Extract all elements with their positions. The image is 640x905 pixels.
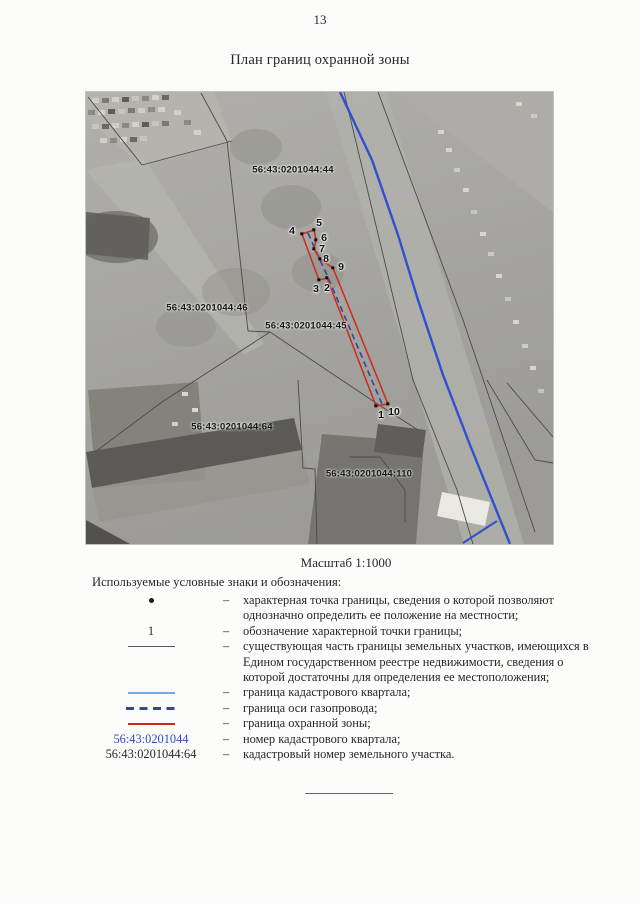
legend-description: граница кадастрового квартала; bbox=[243, 685, 603, 700]
legend-row: 56:43:0201044–номер кадастрового квартал… bbox=[92, 732, 640, 747]
boundary-point-dot bbox=[314, 238, 317, 241]
legend-separator: – bbox=[210, 639, 243, 654]
page-number: 13 bbox=[0, 12, 640, 28]
legend-description: кадастровый номер земельного участка. bbox=[243, 747, 603, 762]
aerial-photo-map: 56:43:0201044:4456:43:0201044:4656:43:02… bbox=[86, 92, 553, 544]
legend-heading: Используемые условные знаки и обозначени… bbox=[92, 575, 341, 590]
boundary-point-label: 1 bbox=[378, 409, 384, 421]
legend-symbol-quarter-number: 56:43:0201044 bbox=[92, 732, 210, 747]
legend-symbol-existing-boundary-line bbox=[92, 639, 210, 654]
parcel-number-label: 56:43:0201044:45 bbox=[265, 321, 346, 332]
boundary-point-label: 4 bbox=[289, 225, 295, 237]
legend-description: граница оси газопровода; bbox=[243, 701, 603, 716]
legend-symbol-quarter-boundary-line bbox=[92, 685, 210, 700]
legend-symbol-protected-zone-line bbox=[92, 716, 210, 731]
legend-description: граница охранной зоны; bbox=[243, 716, 603, 731]
boundary-point-label: 10 bbox=[388, 406, 400, 418]
legend-description: характерная точка границы, сведения о ко… bbox=[243, 593, 603, 624]
boundary-point-dot bbox=[325, 276, 328, 279]
legend-separator: – bbox=[210, 747, 243, 762]
legend-symbol-pipeline-axis-line bbox=[92, 701, 210, 716]
legend-separator: – bbox=[210, 701, 243, 716]
boundary-point-label: 9 bbox=[338, 261, 344, 273]
parcel-number-label: 56:43:0201044:110 bbox=[326, 469, 412, 480]
boundary-point-dot bbox=[318, 257, 321, 260]
legend-row: –характерная точка границы, сведения о к… bbox=[92, 593, 640, 624]
legend-row: 56:43:0201044:64–кадастровый номер земел… bbox=[92, 747, 640, 762]
boundary-point-label: 3 bbox=[313, 283, 319, 295]
legend-symbol-point-dot bbox=[92, 593, 210, 608]
legend-description: обозначение характерной точки границы; bbox=[243, 624, 603, 639]
legend-separator: – bbox=[210, 732, 243, 747]
parcel-number-label: 56:43:0201044:44 bbox=[252, 165, 333, 176]
legend-description: существующая часть границы земельных уча… bbox=[243, 639, 603, 685]
page-title: План границ охранной зоны bbox=[0, 52, 640, 69]
legend: –характерная точка границы, сведения о к… bbox=[92, 593, 640, 762]
legend-row: –существующая часть границы земельных уч… bbox=[92, 639, 640, 685]
footer-rule bbox=[305, 793, 393, 794]
legend-separator: – bbox=[210, 685, 243, 700]
map-graphics bbox=[86, 92, 553, 544]
legend-separator: – bbox=[210, 624, 243, 639]
boundary-point-label: 8 bbox=[323, 253, 329, 265]
boundary-point-label: 2 bbox=[324, 282, 330, 294]
parcel-number-label: 56:43:0201044:64 bbox=[191, 422, 272, 433]
scale-label: Масштаб 1:1000 bbox=[86, 555, 606, 571]
legend-description: номер кадастрового квартала; bbox=[243, 732, 603, 747]
legend-row: –граница оси газопровода; bbox=[92, 701, 640, 716]
boundary-point-dot bbox=[312, 247, 315, 250]
legend-separator: – bbox=[210, 716, 243, 731]
boundary-point-dot bbox=[331, 266, 334, 269]
boundary-point-dot bbox=[374, 404, 377, 407]
boundary-point-dot bbox=[300, 232, 303, 235]
legend-symbol-point-number: 1 bbox=[92, 624, 210, 639]
boundary-point-label: 5 bbox=[316, 217, 322, 229]
legend-row: 1–обозначение характерной точки границы; bbox=[92, 624, 640, 639]
legend-row: –граница охранной зоны; bbox=[92, 716, 640, 731]
parcel-number-label: 56:43:0201044:46 bbox=[166, 303, 247, 314]
legend-row: –граница кадастрового квартала; bbox=[92, 685, 640, 700]
legend-symbol-parcel-number: 56:43:0201044:64 bbox=[92, 747, 210, 762]
boundary-point-dot bbox=[317, 278, 320, 281]
legend-separator: – bbox=[210, 593, 243, 608]
